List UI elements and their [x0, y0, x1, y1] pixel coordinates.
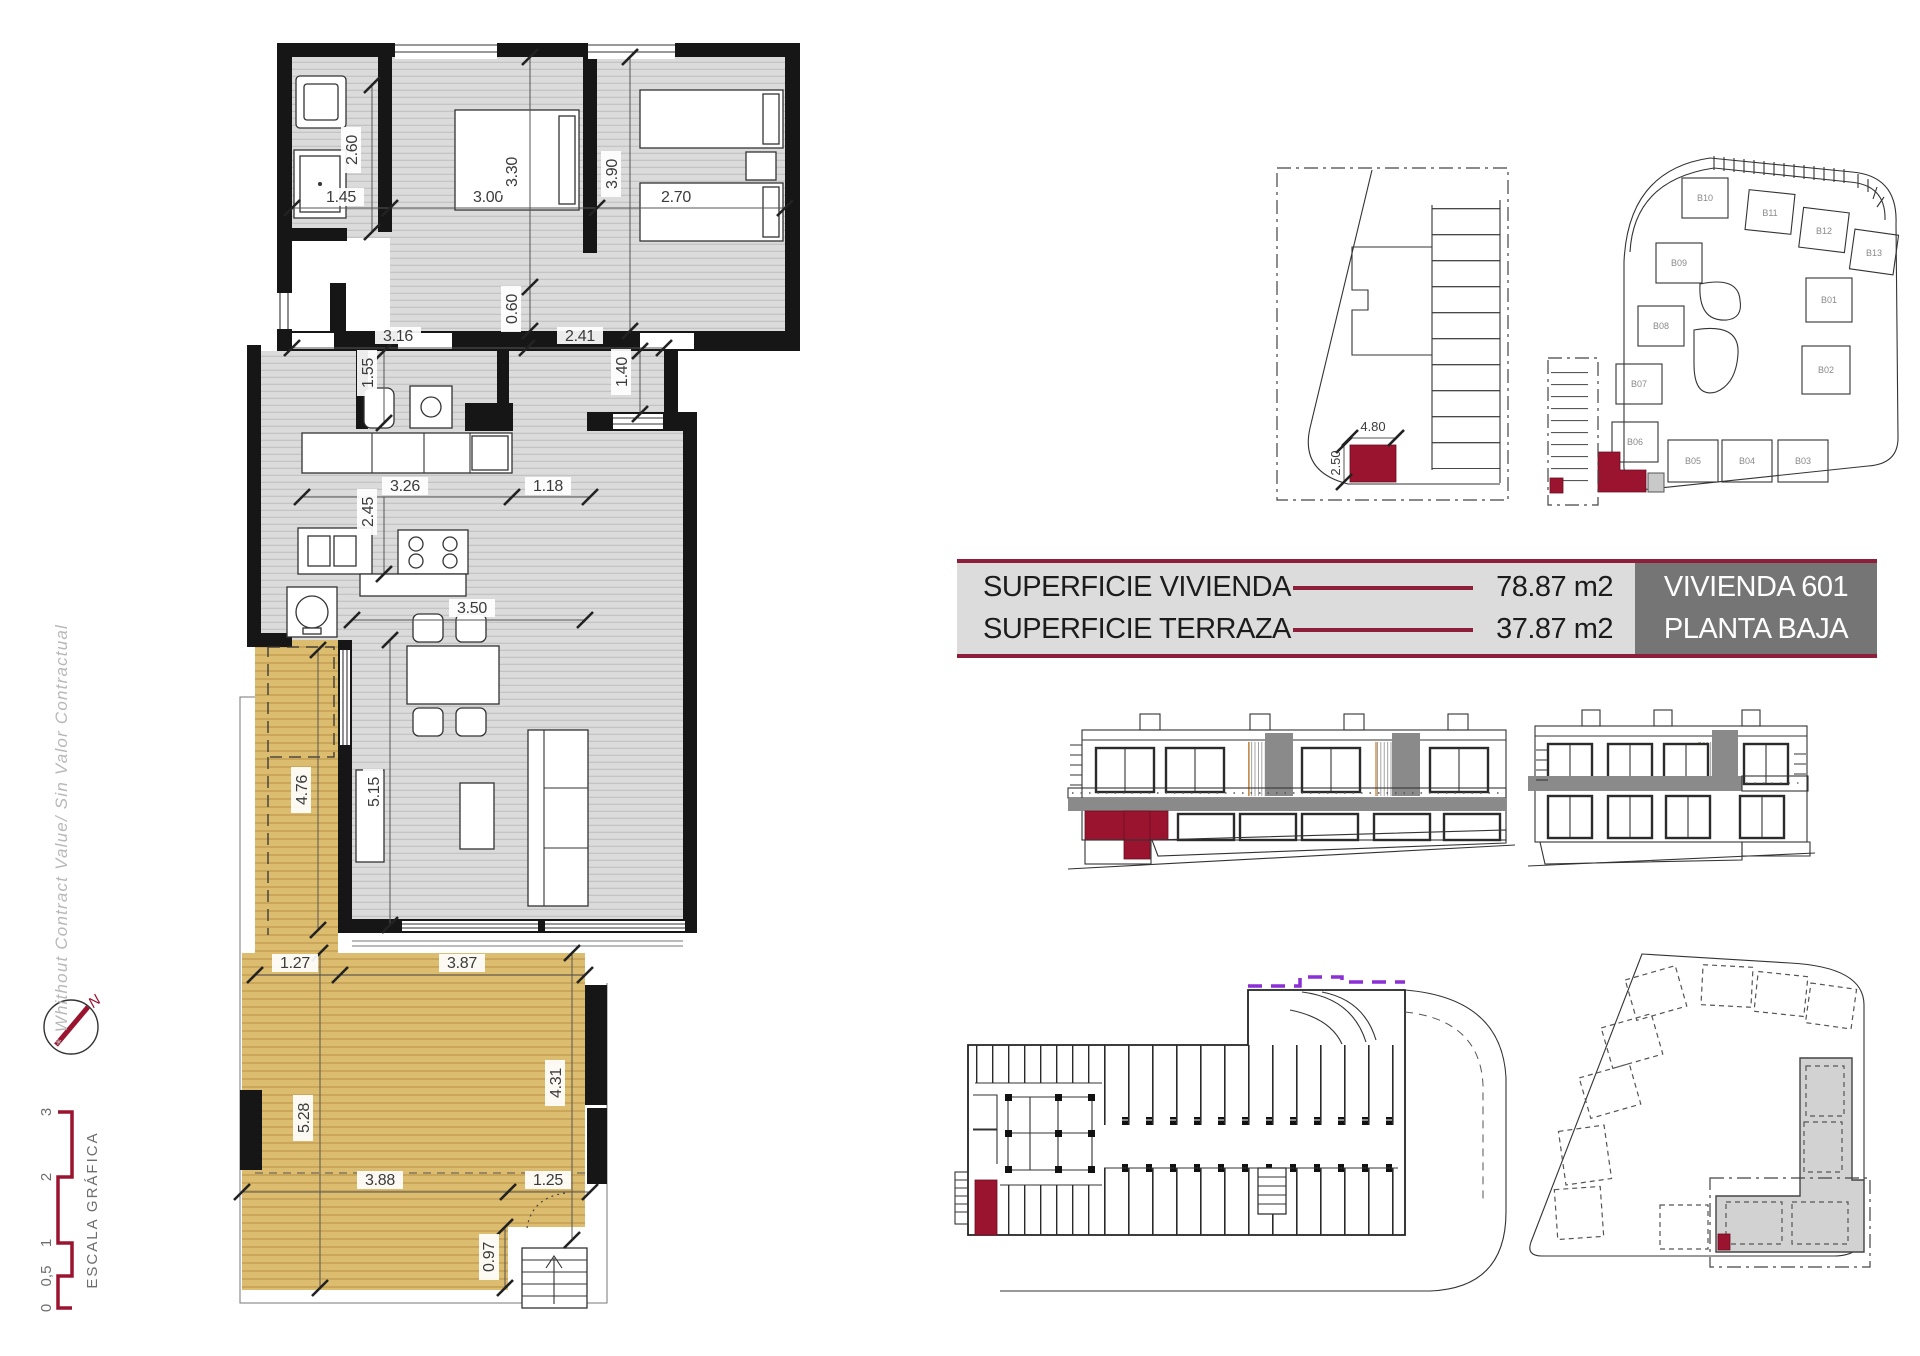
highlighted-parking-space — [1350, 445, 1396, 482]
stove-icon — [398, 530, 468, 574]
parking-dim: 2.50 — [1328, 450, 1343, 475]
dim-label: 1.55 — [360, 358, 377, 388]
sofa-icon — [528, 730, 588, 906]
highlighted-phase-block — [1716, 1058, 1864, 1252]
unit-name: VIVIENDA 601 — [1664, 571, 1848, 604]
area-table: SUPERFICIE VIVIENDA 78.87 m2 SUPERFICIE … — [957, 563, 1635, 654]
single-bed-icon — [640, 90, 783, 148]
dim-label: 5.28 — [296, 1103, 313, 1133]
chair-icon — [456, 614, 486, 642]
parking-detail-plan: 4.80 2.50 — [1277, 168, 1508, 500]
dim-label: 1.40 — [614, 357, 631, 387]
site-plan-top: B10 B11 B12 B13 B09 B08 B07 B06 B01 B02 … — [1548, 156, 1899, 505]
scale-tick: 0 — [38, 1304, 55, 1312]
superficie-vivienda-value: 78.87 m2 — [1473, 571, 1613, 604]
building-label: B08 — [1653, 321, 1669, 331]
building-label: B04 — [1739, 456, 1755, 466]
parking-row-ticks — [1714, 156, 1884, 207]
dim-label: 2.70 — [661, 189, 691, 206]
elevation-front — [1068, 714, 1515, 869]
dim-label: 4.76 — [294, 775, 311, 805]
floor-plan: 2.60 1.45 3.00 3.30 3.90 2.70 0.60 3.16 … — [234, 41, 800, 1308]
scale-tick: 2 — [38, 1173, 55, 1181]
pool — [1694, 328, 1738, 393]
building-labels: B10 B11 B12 B13 B09 B08 B07 B06 B01 B02 … — [1627, 193, 1882, 466]
highlighted-unit-marker — [1718, 1234, 1730, 1250]
highlighted-garage-space — [975, 1180, 997, 1235]
building-label: B03 — [1795, 456, 1811, 466]
building-label: B02 — [1818, 365, 1834, 375]
pool — [1700, 282, 1741, 320]
chair-icon — [413, 708, 443, 736]
coffee-table — [460, 783, 494, 849]
building-label: B13 — [1866, 248, 1882, 258]
dim-label: 1.18 — [533, 478, 563, 495]
scale-title: ESCALA GRÁFICA — [84, 1131, 101, 1288]
chair-icon — [456, 708, 486, 736]
lower-windows — [1178, 814, 1500, 840]
dim-label: 0.97 — [481, 1242, 498, 1272]
site-plan-bottom — [1530, 954, 1870, 1267]
building-label: B07 — [1631, 379, 1647, 389]
area-row: SUPERFICIE VIVIENDA 78.87 m2 — [983, 571, 1613, 604]
dim-label: 2.45 — [360, 497, 377, 527]
building-label: B09 — [1671, 258, 1687, 268]
dim-label: 3.50 — [457, 600, 487, 617]
scale-tick: 1 — [38, 1239, 55, 1247]
dim-label: 3.88 — [365, 1172, 395, 1189]
dim-label: 3.90 — [604, 159, 621, 189]
building-label: B12 — [1816, 226, 1832, 236]
highlighted-unit — [1598, 452, 1646, 492]
purple-boundary — [1248, 977, 1405, 986]
dim-label: 1.27 — [280, 955, 310, 972]
scale-tick: 3 — [38, 1108, 55, 1116]
elevation-side — [1528, 710, 1815, 866]
garage-stairs-icon — [1258, 1168, 1286, 1214]
area-summary-banner: SUPERFICIE VIVIENDA 78.87 m2 SUPERFICIE … — [957, 559, 1877, 658]
dim-label: 3.26 — [390, 478, 420, 495]
plan-sheet: 2.60 1.45 3.00 3.30 3.90 2.70 0.60 3.16 … — [0, 0, 1920, 1356]
dim-label: 2.60 — [344, 135, 361, 165]
dim-label: 1.45 — [326, 189, 356, 206]
dim-label: 3.16 — [383, 328, 413, 345]
dim-label: 3.00 — [473, 189, 503, 206]
rule-line — [1293, 628, 1473, 632]
dim-label: 1.25 — [533, 1172, 563, 1189]
building-label: B05 — [1685, 456, 1701, 466]
building-label: B11 — [1762, 208, 1777, 218]
graphic-scale: 3 2 1 0,5 0 ESCALA GRÁFICA — [38, 1108, 101, 1312]
kitchen-island — [360, 574, 466, 596]
garage-plan — [955, 977, 1506, 1291]
disclaimer-text: * Whithout Contract Value/ Sin Valor Con… — [52, 624, 72, 1046]
unit-floor: PLANTA BAJA — [1664, 613, 1848, 646]
dim-label: 3.30 — [504, 157, 521, 187]
dim-label: 5.15 — [366, 777, 383, 807]
dim-label: 3.87 — [447, 955, 477, 972]
dim-label: 4.31 — [548, 1068, 565, 1098]
building-label: B06 — [1627, 437, 1643, 447]
rule-line — [1293, 586, 1473, 590]
dim-label: 0.60 — [504, 294, 521, 324]
parking-dim: 4.80 — [1360, 419, 1385, 434]
scale-tick: 0,5 — [38, 1266, 55, 1287]
chair-icon — [413, 614, 443, 642]
superficie-vivienda-label: SUPERFICIE VIVIENDA — [983, 571, 1285, 604]
unit-identifier-box: VIVIENDA 601 PLANTA BAJA — [1635, 563, 1877, 654]
dim-label: 2.41 — [565, 328, 595, 345]
building-label: B10 — [1697, 193, 1713, 203]
building-label: B01 — [1821, 295, 1837, 305]
area-row: SUPERFICIE TERRAZA 37.87 m2 — [983, 613, 1613, 646]
superficie-terraza-value: 37.87 m2 — [1473, 613, 1613, 646]
superficie-terraza-label: SUPERFICIE TERRAZA — [983, 613, 1285, 646]
dining-table-icon — [407, 646, 499, 704]
